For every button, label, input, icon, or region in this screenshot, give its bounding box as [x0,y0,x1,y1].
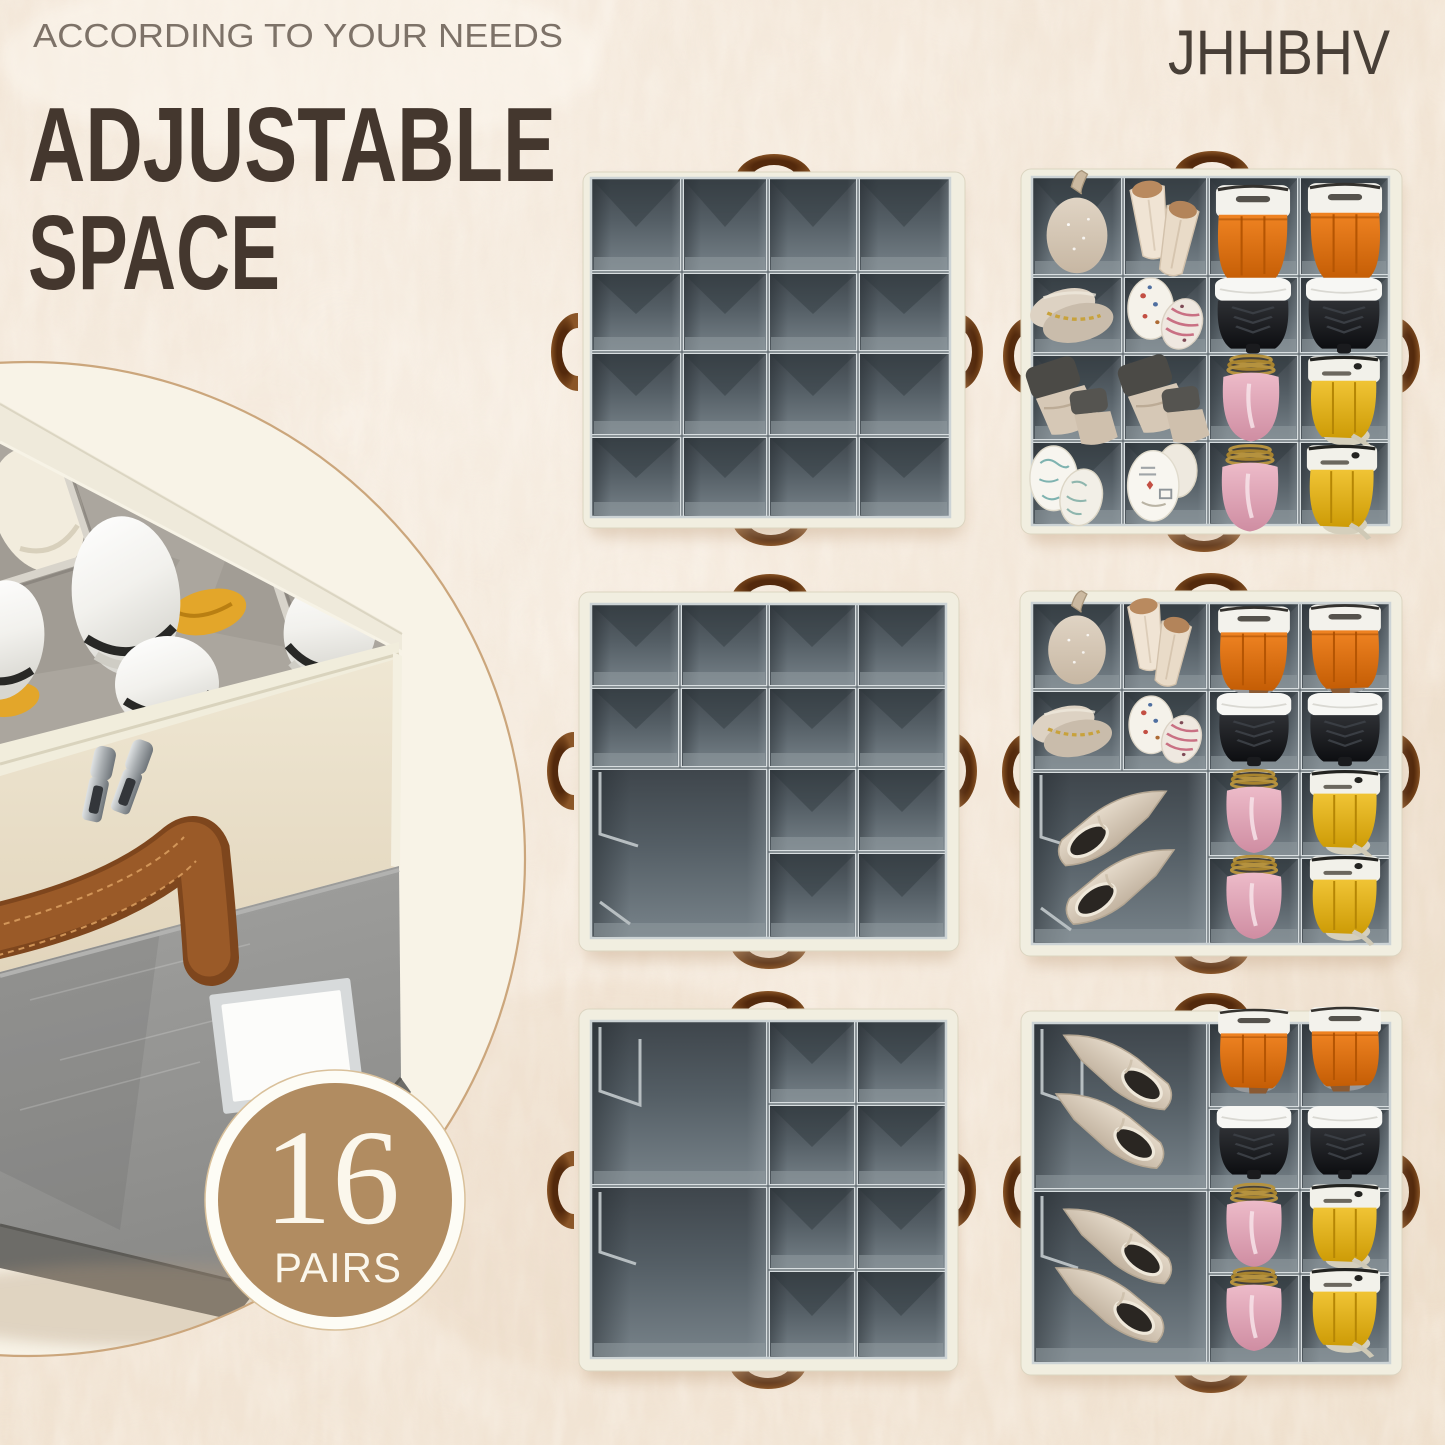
svg-text:SPACE: SPACE [28,194,280,312]
svg-text:JHHBHV: JHHBHV [1168,18,1390,88]
svg-text:ACCORDING TO YOUR NEEDS: ACCORDING TO YOUR NEEDS [33,17,563,54]
svg-text:PAIRS: PAIRS [274,1244,402,1291]
svg-text:16: 16 [264,1103,400,1253]
svg-text:ADJUSTABLE: ADJUSTABLE [28,86,556,204]
